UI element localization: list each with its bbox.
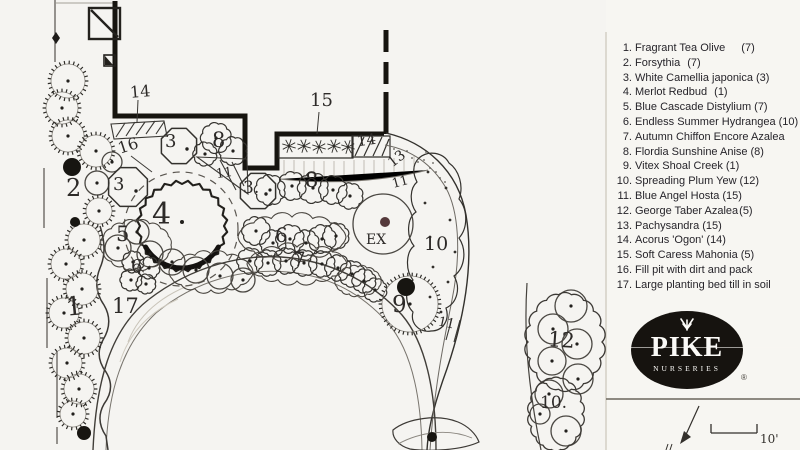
acorus-bed-left bbox=[111, 121, 167, 139]
plan-label-6: 6 bbox=[275, 225, 288, 245]
plan-label-14: 14 bbox=[356, 132, 377, 150]
legend-item: 3.White Camellia japonica(3) bbox=[612, 71, 800, 86]
pike-nurseries-logo: PIKE NURSERIES bbox=[631, 311, 743, 389]
legend-item: 8.Flordia Sunshine Anise(8) bbox=[612, 145, 800, 160]
scale-label: 10' bbox=[760, 432, 779, 446]
legend-item: 6.Endless Summer Hydrangea(10) bbox=[612, 115, 800, 130]
plan-label-4: 4 bbox=[152, 200, 171, 230]
plan-label-11: 11 bbox=[215, 166, 233, 181]
legend-item: 1.Fragrant Tea Olive(7) bbox=[612, 41, 800, 56]
landscape-plan-sheet: 1416238311151413113.845667117EX109111210… bbox=[0, 0, 800, 450]
plan-label-8: 8 bbox=[305, 170, 318, 191]
plan-label-9: 9 bbox=[392, 294, 407, 317]
plan-label-10: 10 bbox=[424, 235, 448, 254]
plan-label-14: 14 bbox=[129, 83, 151, 101]
legend-item: 16.Fill pit with dirt and pack bbox=[612, 263, 800, 278]
plan-label-1: 1 bbox=[65, 293, 84, 320]
plan-label-2: 2 bbox=[66, 176, 81, 200]
plan-label-10: 10. bbox=[540, 395, 567, 412]
mahonia-starbursts bbox=[282, 139, 354, 153]
property-marker bbox=[52, 32, 60, 44]
plan-label-11: 11 bbox=[391, 174, 410, 191]
plan-label-3: 3 bbox=[165, 133, 176, 151]
plan-label-3: 3 bbox=[113, 176, 124, 194]
legend-item: 7.Autumn Chiffon Encore Azalea(13) bbox=[612, 130, 800, 145]
legend-item: 5.Blue Cascade Distylium(7) bbox=[612, 100, 800, 115]
plan-label-8: 8 bbox=[212, 130, 225, 151]
plan-label-3: 3. bbox=[243, 180, 259, 197]
legend-item: 11.Blue Angel Hosta(15) bbox=[612, 189, 800, 204]
legend-item: 9.Vitex Shoal Creek(1) bbox=[612, 159, 800, 174]
legend-item: 14.Acorus 'Ogon'(14) bbox=[612, 233, 800, 248]
plan-label-15: 15 bbox=[310, 92, 333, 110]
legend-item: 10.Spreading Plum Yew(12) bbox=[612, 174, 800, 189]
legend-item: 13.Pachysandra(15) bbox=[612, 219, 800, 234]
lawn-edge bbox=[93, 257, 436, 450]
logo-brand: PIKE bbox=[631, 332, 743, 364]
bed-outlines bbox=[101, 213, 605, 450]
legend-item: 4.Merlot Redbud(1) bbox=[612, 85, 800, 100]
plan-label-11: 11 bbox=[437, 315, 456, 331]
registered-mark: ® bbox=[741, 373, 747, 382]
plan-label-17: 17 bbox=[112, 296, 139, 317]
leaf-icon bbox=[678, 315, 696, 331]
plan-label-7: 7 bbox=[293, 249, 306, 269]
north-arrow bbox=[666, 406, 699, 450]
legend-item: 2.Forsythia(7) bbox=[612, 56, 800, 71]
plan-label-12: 12 bbox=[547, 329, 575, 352]
plan-label-5: 5 bbox=[116, 224, 129, 245]
plan-label-EX: EX bbox=[366, 233, 386, 247]
logo-subtitle: NURSERIES bbox=[631, 364, 743, 373]
legend-item: 15.Soft Caress Mahonia(5) bbox=[612, 248, 800, 263]
legend-item: 17.Large planting bed till in soil bbox=[612, 278, 800, 293]
legend-item: 12.George Taber Azalea(5) bbox=[612, 204, 800, 219]
scale-bar bbox=[711, 424, 757, 433]
plant-legend: 1.Fragrant Tea Olive(7)2.Forsythia(7)3.W… bbox=[612, 41, 800, 293]
plan-label-6: 6 bbox=[131, 258, 142, 276]
scan-artifact-line bbox=[612, 347, 798, 348]
